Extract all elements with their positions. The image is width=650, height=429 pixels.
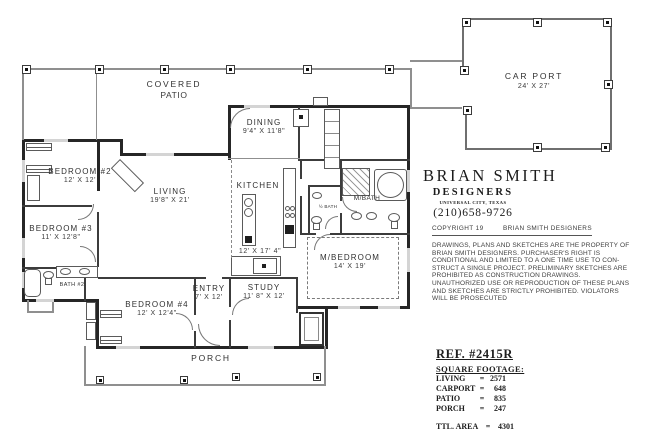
support-post — [533, 143, 542, 152]
room-label-porch: PORCH — [191, 354, 231, 364]
equals-sign: = — [476, 384, 488, 394]
washer-dot — [299, 115, 303, 119]
support-post — [22, 65, 31, 74]
patio-porch-line — [410, 68, 412, 107]
kitchen-sink — [244, 198, 253, 207]
support-post — [232, 373, 240, 381]
sqft-value: 2571 — [488, 374, 506, 384]
room-label-master-bath: M/BATH — [354, 195, 380, 202]
sqft-label: PORCH — [436, 404, 476, 414]
stove-burner — [290, 213, 295, 218]
room-name: CAR PORT — [505, 71, 563, 81]
sqft-total-row: TTL. AREA = 4301 — [436, 422, 514, 429]
room-name: PORCH — [191, 353, 231, 363]
ref-number: REF. #2415R — [436, 347, 524, 362]
room-name: M/BATH — [354, 195, 380, 202]
kitchen-sink — [244, 208, 253, 217]
equals-sign: = — [476, 404, 488, 414]
wall-segment — [407, 107, 410, 309]
sqft-row: LIVING = 2571 — [436, 374, 506, 384]
room-dims: 9'4" X 11'8" — [243, 128, 285, 136]
master-shower — [342, 168, 370, 196]
sqft-label: CARPORT — [436, 384, 476, 394]
chimney — [313, 97, 328, 106]
room-name-line2: PATIO — [147, 91, 202, 101]
title-block: BRIAN SMITH DESIGNERS UNIVERSAL CITY, TE… — [423, 166, 523, 219]
square-footage-title: SQUARE FOOTAGE: — [436, 364, 524, 374]
support-post — [180, 376, 188, 384]
window-marker — [22, 160, 25, 182]
support-post — [313, 373, 321, 381]
sqft-value: 835 — [488, 394, 506, 404]
kitchen-dims: 12' X 17' 4" — [239, 247, 281, 256]
room-name: DINING — [247, 118, 282, 127]
sqft-label: LIVING — [436, 374, 476, 384]
room-label-covered-patio: COVERED PATIO — [147, 80, 202, 101]
room-dims: 24' X 27' — [505, 83, 563, 91]
sqft-row: PORCH = 247 — [436, 404, 506, 414]
room-dims: 7' X 12' — [193, 294, 225, 302]
room-name: BEDROOM #2 — [48, 167, 111, 176]
wall-segment — [296, 277, 298, 313]
support-post — [160, 65, 169, 74]
patio-porch-line — [96, 70, 97, 140]
window-marker — [407, 170, 410, 192]
bath2-toilet-tank — [45, 278, 52, 285]
wall-segment — [97, 212, 99, 267]
stove-burner — [290, 206, 295, 211]
sqft-total-label: TTL. AREA — [436, 422, 482, 429]
reference-block: REF. #2415R SQUARE FOOTAGE: LIVING = 257… — [436, 347, 524, 429]
room-name: BEDROOM #3 — [29, 224, 92, 233]
patio-porch-line — [27, 311, 54, 313]
room-name: BEDROOM #4 — [125, 300, 188, 309]
room-name: ½ BATH — [319, 204, 337, 209]
wall-segment — [300, 196, 302, 235]
equals-sign: = — [476, 394, 488, 404]
patio-porch-line — [84, 384, 326, 386]
room-label-living: LIVING 19'8" X 21' — [150, 187, 190, 205]
linen-closet — [86, 302, 96, 320]
room-dims: 12' X 12' — [48, 177, 111, 185]
patio-porch-line — [228, 158, 300, 159]
window-marker — [378, 306, 400, 309]
bath2-sink — [60, 268, 71, 275]
sqft-label: PATIO — [436, 394, 476, 404]
oven — [285, 225, 294, 234]
patio-porch-line — [22, 68, 412, 70]
room-label-bath2: BATH #2 — [60, 282, 85, 288]
patio-porch-line — [410, 60, 462, 62]
closet — [27, 175, 40, 201]
room-name: STUDY — [248, 283, 281, 292]
equals-sign: = — [482, 422, 494, 429]
sqft-row: CARPORT = 648 — [436, 384, 506, 394]
room-name: M/BEDROOM — [320, 253, 380, 262]
window-marker — [338, 306, 360, 309]
wall-segment — [298, 159, 410, 161]
sqft-value: 247 — [488, 404, 506, 414]
wall-segment — [308, 185, 340, 187]
room-dims: 19'8" X 21' — [150, 197, 190, 205]
patio-porch-line — [410, 107, 462, 109]
window-marker — [22, 238, 25, 258]
room-label-half-bath: ½ BATH — [319, 204, 337, 209]
floorplan-sheet: COVERED PATIO CAR PORT 24' X 27' DINING … — [0, 0, 650, 429]
room-name: COVERED — [147, 79, 202, 89]
halfbath-sink — [312, 192, 322, 199]
support-post — [460, 66, 469, 75]
wall-segment — [228, 105, 231, 160]
sqft-row: PATIO = 835 — [436, 394, 506, 404]
wall-segment — [194, 331, 196, 348]
equals-sign: = — [476, 374, 488, 384]
support-post — [96, 376, 104, 384]
wall-segment — [340, 213, 342, 235]
study-closet-inner — [304, 317, 319, 341]
wall-segment — [222, 277, 298, 279]
wall-segment — [325, 309, 328, 349]
firm-location: UNIVERSAL CITY, TEXAS — [423, 200, 523, 205]
master-sink — [366, 212, 377, 220]
sqft-total-value: 4301 — [494, 422, 514, 429]
support-post — [385, 65, 394, 74]
closet-shelf — [100, 336, 122, 344]
master-toilet-tank — [391, 221, 398, 229]
room-label-dining: DINING 9'4" X 11'8" — [243, 118, 285, 136]
window-marker — [146, 153, 174, 156]
copyright-holder: BRIAN SMITH DESIGNERS — [503, 225, 592, 232]
support-post — [303, 65, 312, 74]
wall-segment — [308, 187, 310, 233]
utility-cabinet — [324, 109, 340, 169]
support-post — [603, 18, 612, 27]
wall-segment — [120, 139, 123, 156]
wall-segment — [22, 139, 122, 142]
room-label-master-bedroom: M/BEDROOM 14' X 19' — [320, 253, 380, 271]
wall-segment — [96, 299, 99, 349]
room-label-entry: ENTRY 7' X 12' — [193, 284, 225, 302]
support-post — [463, 106, 472, 115]
window-marker — [36, 299, 54, 302]
room-label-carport: CAR PORT 24' X 27' — [505, 72, 563, 91]
room-dims: 11' X 12'8" — [29, 234, 92, 242]
copyright-line: COPYRIGHT 19 BRIAN SMITH DESIGNERS — [432, 225, 592, 236]
wall-segment — [300, 233, 316, 235]
window-marker — [407, 248, 410, 272]
appliance-dot — [262, 264, 266, 268]
wall-segment — [196, 277, 206, 279]
dishwasher — [245, 236, 252, 243]
room-name: KITCHEN — [237, 181, 280, 190]
patio-porch-line — [84, 346, 86, 386]
room-label-kitchen: KITCHEN — [237, 181, 280, 190]
wall-segment — [229, 320, 231, 348]
window-marker — [248, 346, 274, 349]
halfbath-toilet-tank — [313, 223, 320, 230]
patio-porch-line — [324, 346, 326, 386]
room-label-bedroom2: BEDROOM #2 12' X 12' — [48, 167, 111, 185]
support-post — [226, 65, 235, 74]
closet-shelf — [100, 310, 122, 318]
wall-segment — [229, 279, 231, 307]
wall-segment — [330, 233, 410, 235]
firm-name: BRIAN SMITH — [423, 166, 523, 186]
sqft-value: 648 — [488, 384, 506, 394]
support-post — [95, 65, 104, 74]
linen-closet — [86, 322, 96, 340]
support-post — [604, 80, 613, 89]
room-label-bedroom3: BEDROOM #3 11' X 12'8" — [29, 224, 92, 242]
patio-porch-line — [22, 68, 24, 140]
firm-type: DESIGNERS — [423, 187, 523, 198]
room-dims: 14' X 19' — [320, 263, 380, 271]
room-dims: 11' 8" X 12' — [243, 293, 285, 301]
closet-shelf — [26, 143, 52, 151]
room-name: ENTRY — [193, 284, 225, 293]
window-marker — [44, 139, 68, 142]
bath2-tub — [24, 269, 41, 297]
room-dims: 12' X 12'4" — [125, 310, 188, 318]
support-post — [601, 143, 610, 152]
window-marker — [116, 346, 140, 349]
disclaimer-text: DRAWINGS, PLANS AND SKETCHES ARE THE PRO… — [432, 242, 630, 303]
room-label-bedroom4: BEDROOM #4 12' X 12'4" — [125, 300, 188, 318]
master-tub-basin — [377, 172, 404, 198]
cased-opening — [231, 160, 232, 258]
wall-segment — [120, 153, 231, 156]
wall-segment — [300, 159, 302, 179]
firm-phone: (210)658-9726 — [423, 207, 523, 219]
room-label-study: STUDY 11' 8" X 12' — [243, 283, 285, 301]
wall-layer — [0, 0, 650, 429]
copyright-prefix: COPYRIGHT 19 — [432, 225, 484, 232]
bath2-sink — [79, 268, 90, 275]
support-post — [462, 18, 471, 27]
room-name: BATH #2 — [60, 282, 85, 288]
room-dims: 12' X 17' 4" — [239, 248, 281, 256]
support-post — [533, 18, 542, 27]
master-sink — [351, 212, 362, 220]
room-name: LIVING — [154, 187, 187, 196]
wall-segment — [98, 277, 197, 279]
